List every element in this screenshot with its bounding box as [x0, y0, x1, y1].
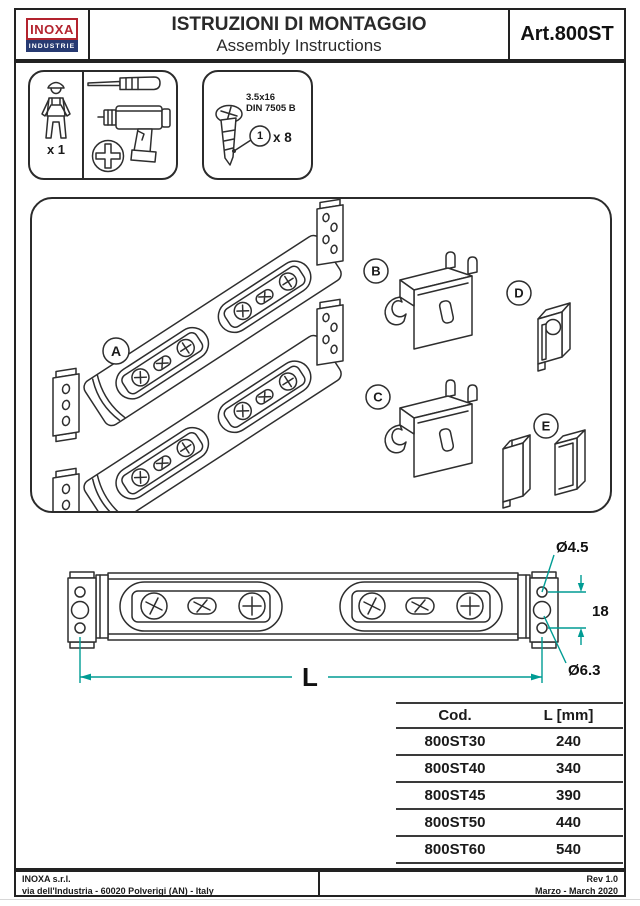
- company-address: via dell'Industria - 60020 Polverigi (AN…: [22, 886, 318, 898]
- company-name: INOXA s.r.l.: [22, 874, 318, 886]
- table-row: 800ST45 390: [396, 783, 623, 810]
- length-cell: 440: [514, 814, 623, 831]
- rail-assembly-a-drawing: [53, 199, 344, 511]
- footer: INOXA s.r.l. via dell'Industria - 60020 …: [14, 870, 626, 897]
- svg-text:E: E: [542, 419, 551, 434]
- svg-text:D: D: [514, 286, 523, 301]
- table-row: 800ST40 340: [396, 756, 623, 783]
- tools-cell: [84, 72, 176, 178]
- footer-company-cell: INOXA s.r.l. via dell'Industria - 60020 …: [16, 872, 320, 895]
- phillips-bit-icon: [93, 141, 124, 172]
- part-label-e: E: [534, 414, 558, 438]
- part-label-c: C: [366, 385, 390, 409]
- svg-text:C: C: [373, 390, 383, 405]
- length-cell: 390: [514, 787, 623, 804]
- slot-group-right: [340, 582, 502, 631]
- part-label-d: D: [507, 281, 531, 305]
- page-edge-line: [0, 899, 640, 900]
- code-cell: 800ST60: [396, 841, 514, 858]
- rail-front-view: [68, 572, 558, 648]
- screw-standard-label: DIN 7505 B: [246, 103, 296, 114]
- caps-e-drawing: [503, 430, 585, 508]
- part-label-b: B: [364, 259, 388, 283]
- title-italian: ISTRUZIONI DI MONTAGGIO: [171, 13, 426, 36]
- logo-cell: INOXA INDUSTRIE: [16, 10, 90, 59]
- article-number: Art.800ST: [510, 10, 624, 59]
- installer-cell: x 1: [30, 72, 84, 178]
- logo-inoxa-text: INOXA: [26, 18, 78, 40]
- dim-bottom-hole: Ø6.3: [568, 662, 601, 679]
- logo-industrie-text: INDUSTRIE: [26, 40, 78, 52]
- code-cell: 800ST45: [396, 787, 514, 804]
- table-header-length: L [mm]: [514, 707, 623, 724]
- screw-size-label: 3.5x16: [246, 92, 275, 103]
- title-english: Assembly Instructions: [216, 36, 381, 57]
- instruction-sheet: INOXA INDUSTRIE ISTRUZIONI DI MONTAGGIO …: [0, 0, 640, 906]
- revision-label: Rev 1.0: [320, 874, 618, 886]
- table-row: 800ST60 540: [396, 837, 623, 864]
- svg-text:A: A: [111, 343, 121, 359]
- length-cell: 240: [514, 733, 623, 750]
- title-cell: ISTRUZIONI DI MONTAGGIO Assembly Instruc…: [90, 10, 510, 59]
- code-cell: 800ST50: [396, 814, 514, 831]
- screw-callout-number: 1: [257, 130, 263, 142]
- table-header-code: Cod.: [396, 707, 514, 724]
- length-cell: 540: [514, 841, 623, 858]
- table-row: 800ST30 240: [396, 729, 623, 756]
- hook-bracket-c-drawing: [385, 380, 477, 477]
- dim-hole-spacing: 18: [592, 603, 609, 620]
- screw-icon: [216, 106, 242, 166]
- length-cell: 340: [514, 760, 623, 777]
- size-table: Cod. L [mm] 800ST30 240 800ST40 340 800S…: [396, 702, 623, 864]
- table-header-row: Cod. L [mm]: [396, 704, 623, 729]
- clip-d-drawing: [538, 303, 570, 371]
- parts-diagram-box: A B C D: [30, 197, 612, 513]
- dim-length-symbol: L: [302, 662, 318, 692]
- screwdriver-icon: [88, 77, 160, 90]
- inoxa-logo: INOXA INDUSTRIE: [26, 18, 78, 52]
- dim-top-hole: Ø4.5: [556, 539, 589, 556]
- installer-quantity: x 1: [47, 142, 65, 157]
- code-cell: 800ST40: [396, 760, 514, 777]
- tools-box: x 1: [28, 70, 178, 180]
- table-row: 800ST50 440: [396, 810, 623, 837]
- frontview-drawing: Ø4.5 18 Ø6.3 L: [30, 525, 626, 697]
- footer-revision-cell: Rev 1.0 Marzo - March 2020: [320, 872, 624, 895]
- hardware-box: 3.5x16 DIN 7505 B 1 x 8: [202, 70, 313, 180]
- header: INOXA INDUSTRIE ISTRUZIONI DI MONTAGGIO …: [14, 8, 626, 61]
- worker-icon: [37, 78, 75, 144]
- screw-quantity: x 8: [273, 130, 292, 145]
- part-label-a: A: [103, 338, 129, 364]
- hook-bracket-b-drawing: [385, 252, 477, 349]
- svg-text:B: B: [371, 264, 380, 279]
- left-end-bracket: [68, 572, 96, 648]
- screw-callout-circle: 1: [232, 126, 270, 153]
- date-label: Marzo - March 2020: [320, 886, 618, 898]
- code-cell: 800ST30: [396, 733, 514, 750]
- slot-group-left: [120, 582, 282, 631]
